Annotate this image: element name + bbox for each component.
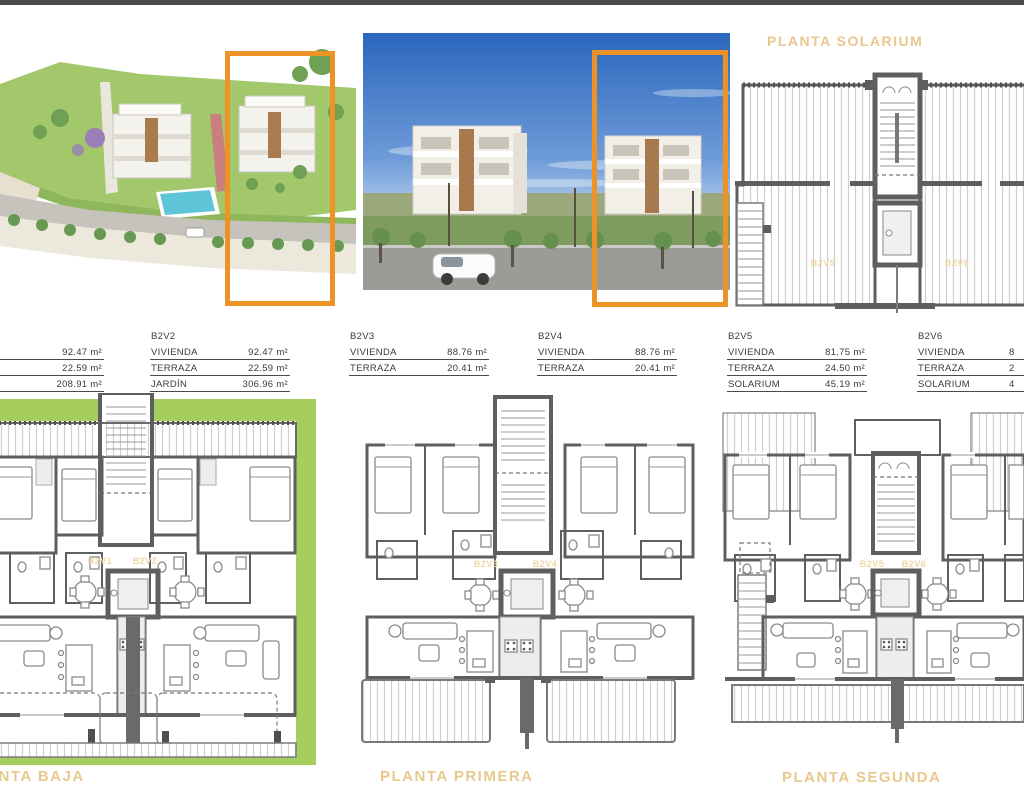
primera-terraces bbox=[362, 677, 675, 742]
unit-table-b2v6: B2V6 VIVIENDA 8 TERRAZA 2 SOLARIUM 4 bbox=[917, 331, 1024, 392]
segunda-elevator bbox=[873, 571, 919, 615]
unit-table-b2v5: B2V5 VIVIENDA 81.75 m² TERRAZA 24.50 m² … bbox=[727, 331, 867, 392]
segunda-stair-core bbox=[855, 420, 940, 553]
top-border-strip bbox=[0, 0, 1024, 5]
segunda-unit-label-left: B2V5 bbox=[860, 559, 885, 569]
primera-elevator bbox=[501, 571, 553, 617]
unit-table-b2v3: B2V3 VIVIENDA 88.76 m² TERRAZA 20.41 m² bbox=[349, 331, 489, 376]
table-row: 208.91 m² bbox=[0, 376, 104, 392]
solarium-unit-label-right: B2V6 bbox=[945, 258, 970, 268]
planta-primera-floor-plan: B2V3 B2V4 bbox=[355, 395, 705, 760]
segunda-living-rooms bbox=[763, 617, 1024, 679]
table-row: TERRAZA 22.59 m² bbox=[150, 360, 290, 376]
table-row: 22.59 m² bbox=[0, 360, 104, 376]
table-row: 92.47 m² bbox=[0, 344, 104, 360]
planta-baja-floor-plan: B2V1 B2V2 bbox=[0, 393, 320, 771]
table-row: VIVIENDA 88.76 m² bbox=[537, 344, 677, 360]
unit-table-title bbox=[0, 331, 104, 344]
table-row: SOLARIUM 4 bbox=[917, 376, 1024, 392]
unit-table-title: B2V3 bbox=[349, 331, 489, 344]
unit-table-title: B2V4 bbox=[537, 331, 677, 344]
planta-segunda-floor-plan: B2V5 B2V6 bbox=[705, 395, 1024, 765]
aerial-car bbox=[186, 228, 204, 237]
solarium-elevator bbox=[875, 203, 920, 265]
baja-unit-label-right: B2V2 bbox=[133, 556, 158, 566]
unit-table-title: B2V5 bbox=[727, 331, 867, 344]
solarium-floor-plan: B2V5 B2V6 bbox=[735, 55, 1024, 317]
segunda-plan-title: PLANTA SEGUNDA bbox=[782, 769, 941, 786]
solarium-unit-label-left: B2V5 bbox=[811, 258, 836, 268]
table-row: VIVIENDA 8 bbox=[917, 344, 1024, 360]
table-row: VIVIENDA 88.76 m² bbox=[349, 344, 489, 360]
solarium-stair-core bbox=[875, 75, 920, 197]
unit-table-b2v2: B2V2 VIVIENDA 92.47 m² TERRAZA 22.59 m² … bbox=[150, 331, 290, 392]
primera-living-rooms bbox=[367, 617, 693, 678]
primera-plan-title: PLANTA PRIMERA bbox=[380, 768, 534, 785]
aerial-building-left bbox=[113, 104, 191, 178]
solarium-plan-title: PLANTA SOLARIUM bbox=[767, 33, 923, 49]
brochure-page: BLOQUE 2 bbox=[0, 0, 1024, 800]
primera-unit-label-right: B2V4 bbox=[533, 559, 558, 569]
orange-highlight-box-left bbox=[225, 51, 335, 306]
table-row: SOLARIUM 45.19 m² bbox=[727, 376, 867, 392]
table-row: VIVIENDA 92.47 m² bbox=[150, 344, 290, 360]
photo-building-left bbox=[413, 126, 527, 214]
table-row: TERRAZA 24.50 m² bbox=[727, 360, 867, 376]
primera-stair-core bbox=[495, 397, 551, 553]
unit-table-title: B2V6 bbox=[917, 331, 1024, 344]
baja-plan-title: PLANTA BAJA bbox=[0, 768, 85, 785]
table-row: TERRAZA 20.41 m² bbox=[537, 360, 677, 376]
table-row: TERRAZA 20.41 m² bbox=[349, 360, 489, 376]
unit-table-title: B2V2 bbox=[150, 331, 290, 344]
unit-table-cutoff: 92.47 m² 22.59 m² 208.91 m² bbox=[0, 331, 104, 392]
unit-table-b2v4: B2V4 VIVIENDA 88.76 m² TERRAZA 20.41 m² bbox=[537, 331, 677, 376]
segunda-terrace-band bbox=[732, 685, 1024, 722]
table-row: JARDÍN 306.96 m² bbox=[150, 376, 290, 392]
table-row: TERRAZA 2 bbox=[917, 360, 1024, 376]
table-row: VIVIENDA 81.75 m² bbox=[727, 344, 867, 360]
segunda-unit-label-right: B2V6 bbox=[902, 559, 927, 569]
baja-unit-label-left: B2V1 bbox=[88, 556, 113, 566]
primera-unit-label-left: B2V3 bbox=[474, 559, 499, 569]
orange-highlight-box-middle bbox=[592, 50, 728, 307]
